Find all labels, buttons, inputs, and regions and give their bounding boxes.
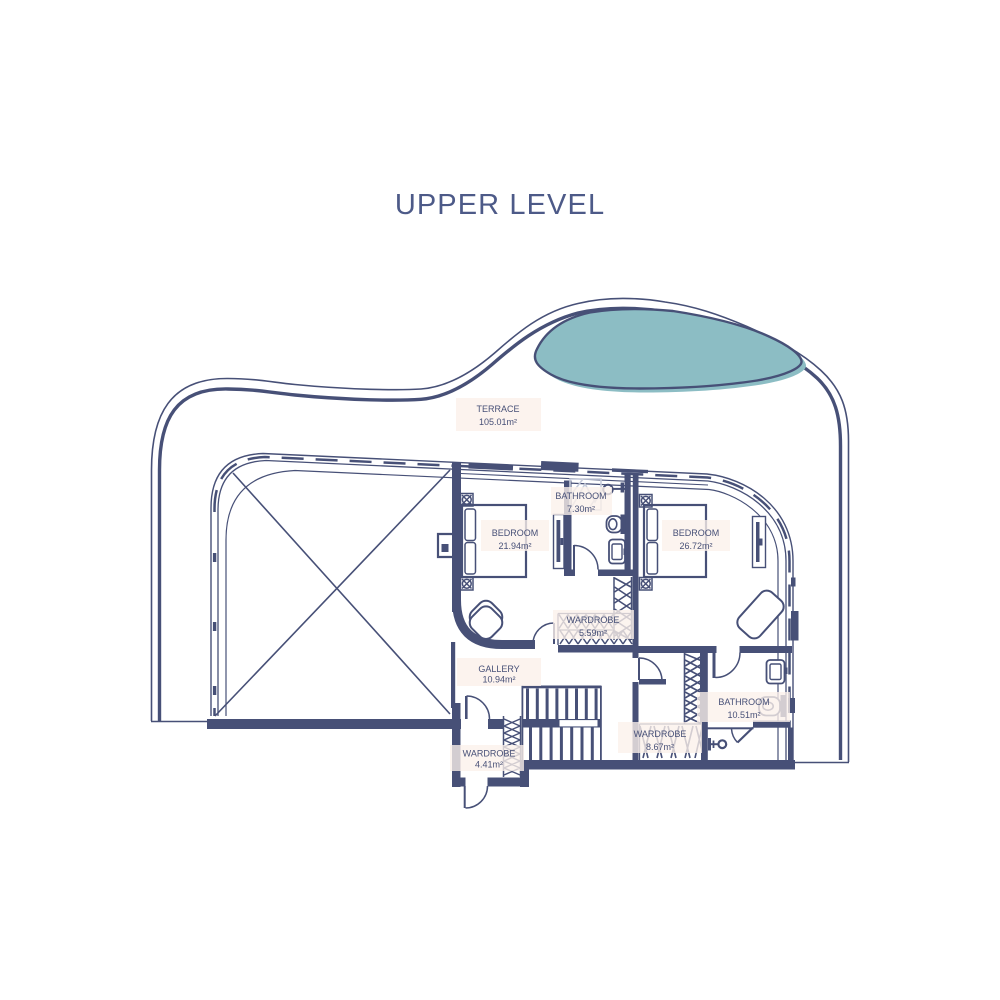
svg-text:WARDROBE: WARDROBE (463, 749, 516, 759)
svg-text:4.41m²: 4.41m² (475, 760, 503, 770)
svg-text:UPPER LEVEL: UPPER LEVEL (395, 189, 605, 221)
svg-text:BEDROOM: BEDROOM (673, 528, 720, 538)
svg-text:7.30m²: 7.30m² (567, 504, 595, 514)
svg-text:GALLERY: GALLERY (478, 664, 519, 674)
svg-text:8.67m²: 8.67m² (646, 742, 674, 752)
svg-text:TERRACE: TERRACE (476, 404, 519, 414)
svg-text:BATHROOM: BATHROOM (718, 697, 769, 707)
svg-text:10.94m²: 10.94m² (482, 675, 515, 685)
svg-text:BEDROOM: BEDROOM (492, 528, 539, 538)
svg-text:BATHROOM: BATHROOM (555, 491, 606, 501)
svg-text:105.01m²: 105.01m² (479, 417, 517, 427)
svg-text:10.51m²: 10.51m² (727, 710, 760, 720)
svg-text:5.59m²: 5.59m² (579, 628, 607, 638)
svg-text:21.94m²: 21.94m² (498, 541, 531, 551)
svg-text:WARDROBE: WARDROBE (567, 615, 620, 625)
svg-text:WARDROBE: WARDROBE (634, 729, 687, 739)
svg-text:26.72m²: 26.72m² (679, 541, 712, 551)
